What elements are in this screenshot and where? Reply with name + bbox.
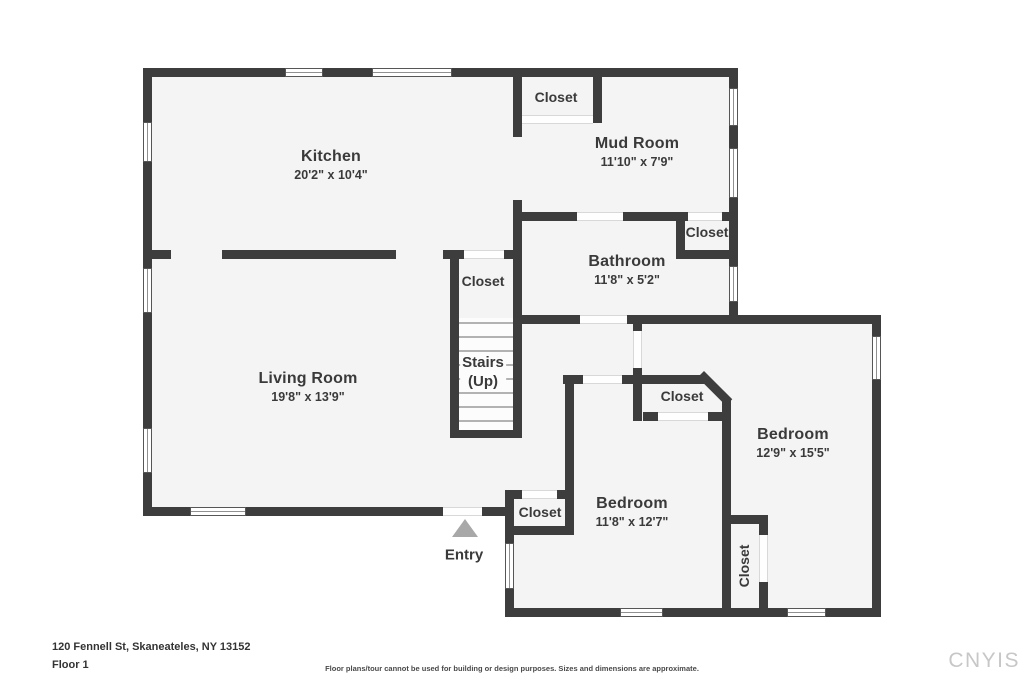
room-dims: 19'8" x 13'9" xyxy=(258,390,357,404)
door-opening xyxy=(522,115,593,124)
room-name: Kitchen xyxy=(294,148,367,166)
door-opening xyxy=(577,212,623,221)
room-dims: 20'2" x 10'4" xyxy=(294,168,367,182)
wall-segment xyxy=(513,200,522,438)
footer-disclaimer: Floor plans/tour cannot be used for buil… xyxy=(0,664,1024,673)
stair-tread xyxy=(459,322,513,324)
wall-segment xyxy=(450,430,513,438)
watermark-logo: CNYIS xyxy=(948,649,1020,673)
window xyxy=(729,88,738,126)
window xyxy=(190,507,246,516)
closet-label-vertical: Closet xyxy=(736,545,752,588)
room-label-mud-room: Mud Room 11'10" x 7'9" xyxy=(595,135,679,169)
window xyxy=(787,608,826,617)
closet-label-top: Closet xyxy=(535,89,578,105)
window xyxy=(872,336,881,380)
door-opening xyxy=(464,250,504,259)
window xyxy=(372,68,452,77)
door-opening xyxy=(688,212,722,221)
room-dims: 11'10" x 7'9" xyxy=(595,155,679,169)
door-opening xyxy=(759,535,768,582)
window xyxy=(729,266,738,302)
entry-label: Entry xyxy=(445,547,483,564)
stair-tread xyxy=(459,392,513,394)
door-opening xyxy=(522,490,557,499)
wall-segment xyxy=(222,250,396,259)
stairs-label: Stairs (Up) xyxy=(460,353,506,391)
stair-tread xyxy=(459,336,513,338)
stair-tread xyxy=(459,406,513,408)
floor-plan: Kitchen 20'2" x 10'4" Mud Room 11'10" x … xyxy=(0,0,1024,683)
stair-tread xyxy=(459,350,513,352)
entry-marker-icon xyxy=(452,519,478,537)
window xyxy=(620,608,663,617)
room-label-bedroom-bottom: Bedroom 11'8" x 12'7" xyxy=(596,495,669,529)
wall-segment xyxy=(513,68,522,137)
wall-segment xyxy=(676,250,738,259)
wall-segment xyxy=(505,526,574,535)
wall-segment xyxy=(722,398,731,617)
room-dims: 11'8" x 5'2" xyxy=(588,273,665,287)
door-opening xyxy=(658,412,708,421)
room-name: Bedroom xyxy=(596,495,669,513)
wall-segment xyxy=(565,375,574,535)
footer-address: 120 Fennell St, Skaneateles, NY 13152 xyxy=(52,641,251,653)
wall-segment xyxy=(513,315,881,324)
door-opening xyxy=(633,331,642,368)
window xyxy=(505,543,514,589)
stair-tread xyxy=(459,420,513,422)
room-label-bathroom: Bathroom 11'8" x 5'2" xyxy=(588,253,665,287)
closet-label-bedroom: Closet xyxy=(519,504,562,520)
window xyxy=(729,148,738,198)
window xyxy=(143,268,152,313)
stairs-label-line2: (Up) xyxy=(460,372,506,391)
room-name: Living Room xyxy=(258,370,357,388)
door-opening xyxy=(580,315,627,324)
closet-label-hall: Closet xyxy=(462,273,505,289)
room-name: Bedroom xyxy=(756,426,829,444)
door-opening xyxy=(443,507,482,516)
room-label-bedroom-right: Bedroom 12'9" x 15'5" xyxy=(756,426,829,460)
closet-label-mudroom: Closet xyxy=(686,224,729,240)
wall-segment xyxy=(593,68,602,123)
wall-segment xyxy=(450,250,459,438)
stairs-label-line1: Stairs xyxy=(460,353,506,372)
room-dims: 11'8" x 12'7" xyxy=(596,515,669,529)
window xyxy=(285,68,323,77)
room-label-living-room: Living Room 19'8" x 13'9" xyxy=(258,370,357,404)
window xyxy=(143,428,152,473)
room-label-kitchen: Kitchen 20'2" x 10'4" xyxy=(294,148,367,182)
window xyxy=(143,122,152,162)
door-opening xyxy=(583,375,622,384)
room-dims: 12'9" x 15'5" xyxy=(756,446,829,460)
room-name: Mud Room xyxy=(595,135,679,153)
closet-label-angled: Closet xyxy=(661,388,704,404)
room-name: Bathroom xyxy=(588,253,665,271)
wall-segment xyxy=(143,250,171,259)
floorplan-canvas: Kitchen 20'2" x 10'4" Mud Room 11'10" x … xyxy=(0,0,1024,683)
